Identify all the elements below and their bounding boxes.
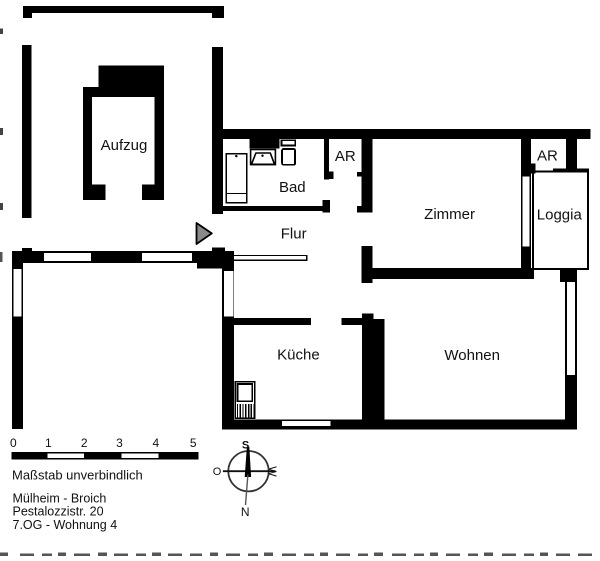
svg-text:2: 2 <box>81 436 88 450</box>
svg-text:1: 1 <box>45 436 52 450</box>
svg-text:Flur: Flur <box>281 226 307 243</box>
svg-text:O: O <box>213 466 222 478</box>
svg-text:3: 3 <box>116 436 123 450</box>
svg-text:Loggia: Loggia <box>537 206 583 223</box>
svg-text:7.OG - Wohnung 4: 7.OG - Wohnung 4 <box>13 518 118 532</box>
svg-text:AR: AR <box>335 148 356 165</box>
svg-text:Maßstab unverbindlich: Maßstab unverbindlich <box>12 467 143 482</box>
svg-text:Mülheim - Broich: Mülheim - Broich <box>13 491 107 505</box>
svg-text:Bad: Bad <box>279 179 306 196</box>
svg-text:Pestalozzistr. 20: Pestalozzistr. 20 <box>13 505 104 519</box>
svg-text:4: 4 <box>152 436 159 450</box>
svg-text:Aufzug: Aufzug <box>101 137 148 154</box>
svg-text:Wohnen: Wohnen <box>444 347 500 364</box>
svg-text:Küche: Küche <box>277 347 320 364</box>
svg-text:5: 5 <box>190 436 197 450</box>
svg-text:AR: AR <box>537 147 558 164</box>
svg-text:W: W <box>266 466 278 477</box>
svg-text:Zimmer: Zimmer <box>424 206 475 223</box>
svg-text:0: 0 <box>10 436 17 450</box>
svg-text:N: N <box>241 505 250 519</box>
svg-text:S: S <box>242 440 249 452</box>
